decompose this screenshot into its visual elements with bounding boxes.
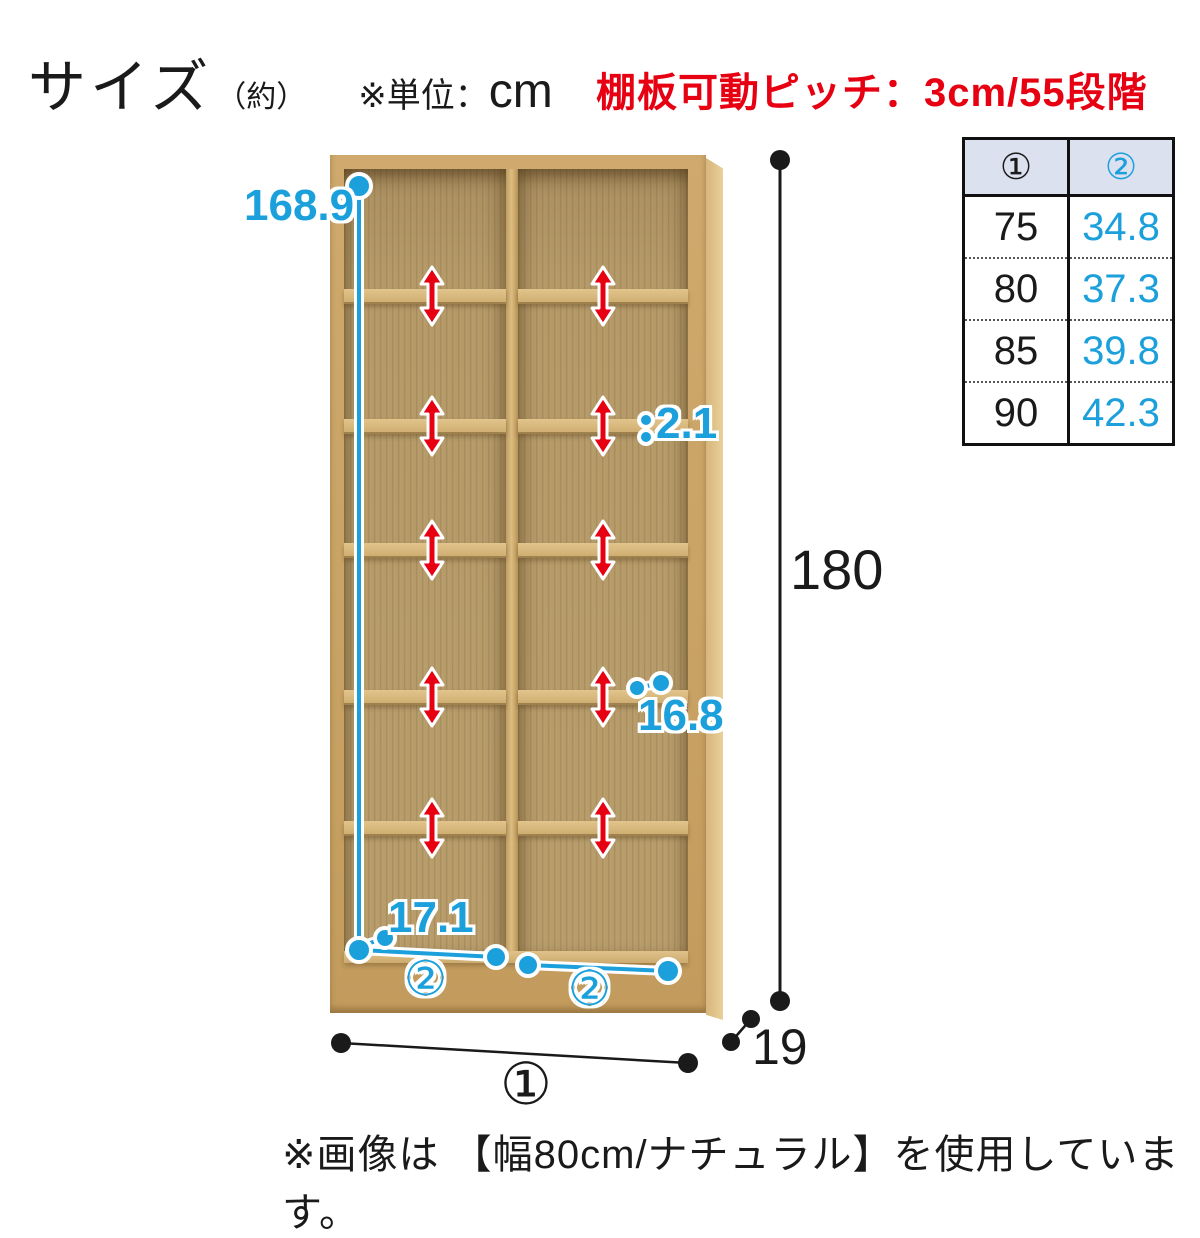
dimension-dot [331, 1033, 351, 1053]
dimension-dot [485, 946, 507, 968]
dimension-dot [770, 991, 790, 1011]
dimension-dot [678, 1053, 698, 1073]
shelf-adjust-arrow-icon [421, 521, 443, 579]
dimension-dot [656, 959, 680, 983]
total-width-label: ① [500, 1056, 552, 1114]
shelf-adjust-arrow-icon [421, 668, 443, 726]
dimension-dot [347, 938, 371, 962]
shelf-adjust-arrow-icon [421, 267, 443, 325]
interior-height-label: 168.9 [244, 184, 354, 228]
shelf-adjust-arrow-icon [421, 799, 443, 857]
shelf-adjust-arrow-icon [592, 668, 614, 726]
shelf-adjust-arrow-icon [592, 799, 614, 857]
dimension-dot [639, 413, 653, 427]
shelf-adjust-arrow-icon [592, 521, 614, 579]
total-height-label: 180 [790, 542, 883, 598]
dimension-dot [770, 150, 790, 170]
dimension-dot [639, 430, 653, 444]
shelf-adjust-arrow-icon [592, 397, 614, 455]
total-depth-label: 19 [752, 1022, 808, 1072]
shelf-depth-label: 16.8 [638, 694, 724, 738]
dimension-dot [651, 673, 671, 693]
shelf-adjust-arrow-icon [421, 397, 443, 455]
inner-width-left-label: ② [404, 956, 447, 1004]
dimension-dot [722, 1033, 740, 1051]
inner-width-right-label: ② [568, 966, 611, 1014]
dimension-annotations-svg [0, 0, 1200, 1200]
shelf-adjust-arrow-icon [592, 267, 614, 325]
shelf-thickness-label: 2.1 [656, 402, 717, 446]
image-caption: ※画像は 【幅80cm/ナチュラル】を使用しています。 [282, 1122, 1200, 1238]
size-diagram-page: { "header": { "title": "サイズ", "title_app… [0, 0, 1200, 1200]
dimension-dot [517, 954, 539, 976]
bottom-depth-label: 17.1 [388, 896, 474, 940]
